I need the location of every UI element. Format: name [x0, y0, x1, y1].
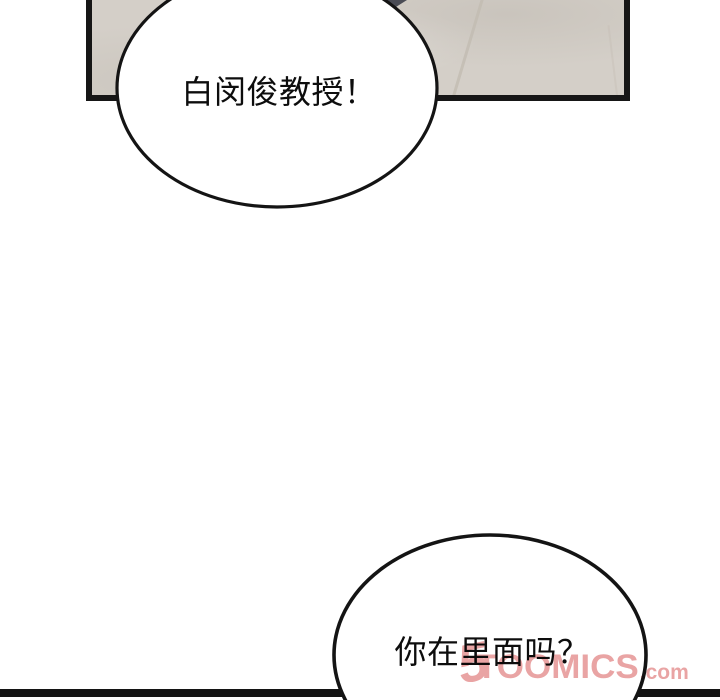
comic-page: 白闵俊教授！ 你在里面吗？ 5 TOOMICS .com [0, 0, 720, 700]
dialogue-text-top: 白闵俊教授！ [181, 67, 376, 113]
dialogue-text-bottom: 你在里面吗？ [394, 627, 589, 673]
speech-bubble-bottom [334, 535, 646, 700]
